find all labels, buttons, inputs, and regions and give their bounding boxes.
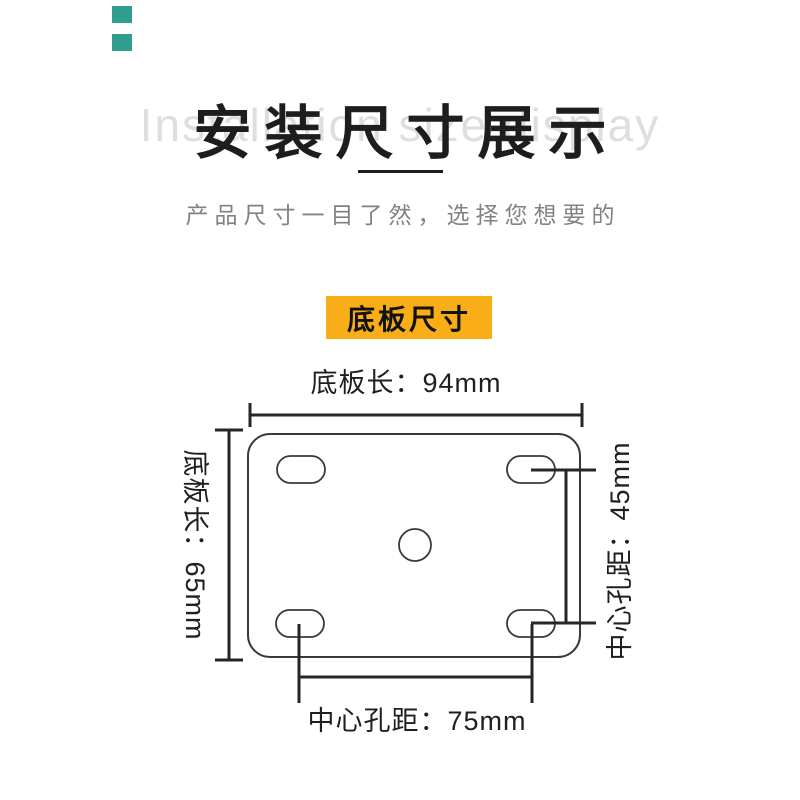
dimension-label-top: 底板长：94mm — [310, 368, 501, 398]
dimension-line-left — [215, 430, 243, 660]
mounting-hole-top-left — [277, 456, 325, 483]
dimension-label-right: 中心孔距：45mm — [605, 441, 635, 660]
dimension-label-bottom: 中心孔距：75mm — [307, 706, 526, 736]
page-title: 安装尺寸展示 — [0, 86, 800, 170]
title-underline — [358, 170, 443, 173]
section-badge: 底板尺寸 — [326, 296, 492, 339]
page-subtitle: 产品尺寸一目了然，选择您想要的 — [0, 196, 800, 230]
accent-square-top — [112, 6, 132, 23]
product-detail-page: Installation size display 安装尺寸展示 产品尺寸一目了… — [0, 0, 800, 800]
dimension-label-left: 底板长：65mm — [180, 449, 210, 640]
center-hole — [399, 529, 431, 561]
dimension-line-top — [250, 403, 582, 427]
accent-square-bottom — [112, 34, 132, 51]
dimension-diagram: 底板长：94mm 底板长：65mm 中心孔距：45mm — [0, 350, 800, 800]
